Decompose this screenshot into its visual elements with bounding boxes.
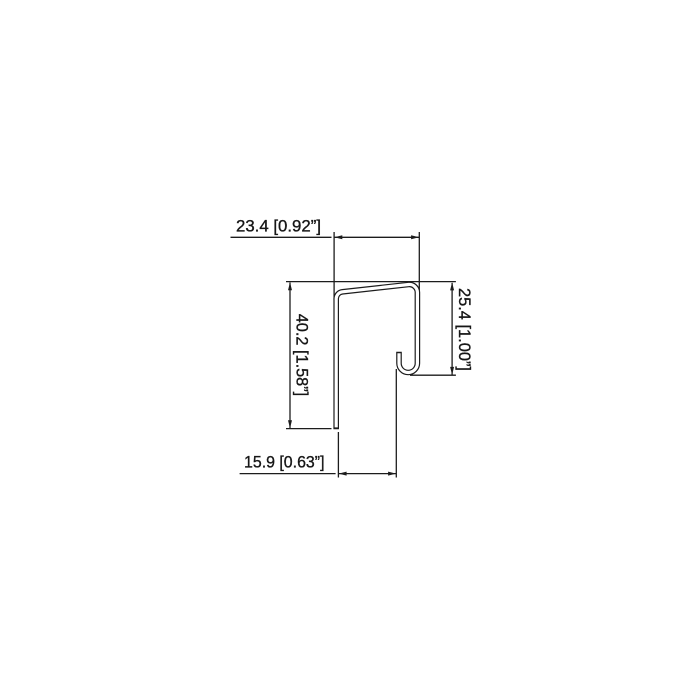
svg-text:25.4 [1.00”]: 25.4 [1.00”]: [455, 288, 474, 371]
svg-text:15.9 [0.63”]: 15.9 [0.63”]: [244, 452, 325, 471]
svg-text:40.2 [1.58”]: 40.2 [1.58”]: [293, 314, 312, 397]
svg-text:23.4 [0.92”]: 23.4 [0.92”]: [236, 217, 321, 236]
